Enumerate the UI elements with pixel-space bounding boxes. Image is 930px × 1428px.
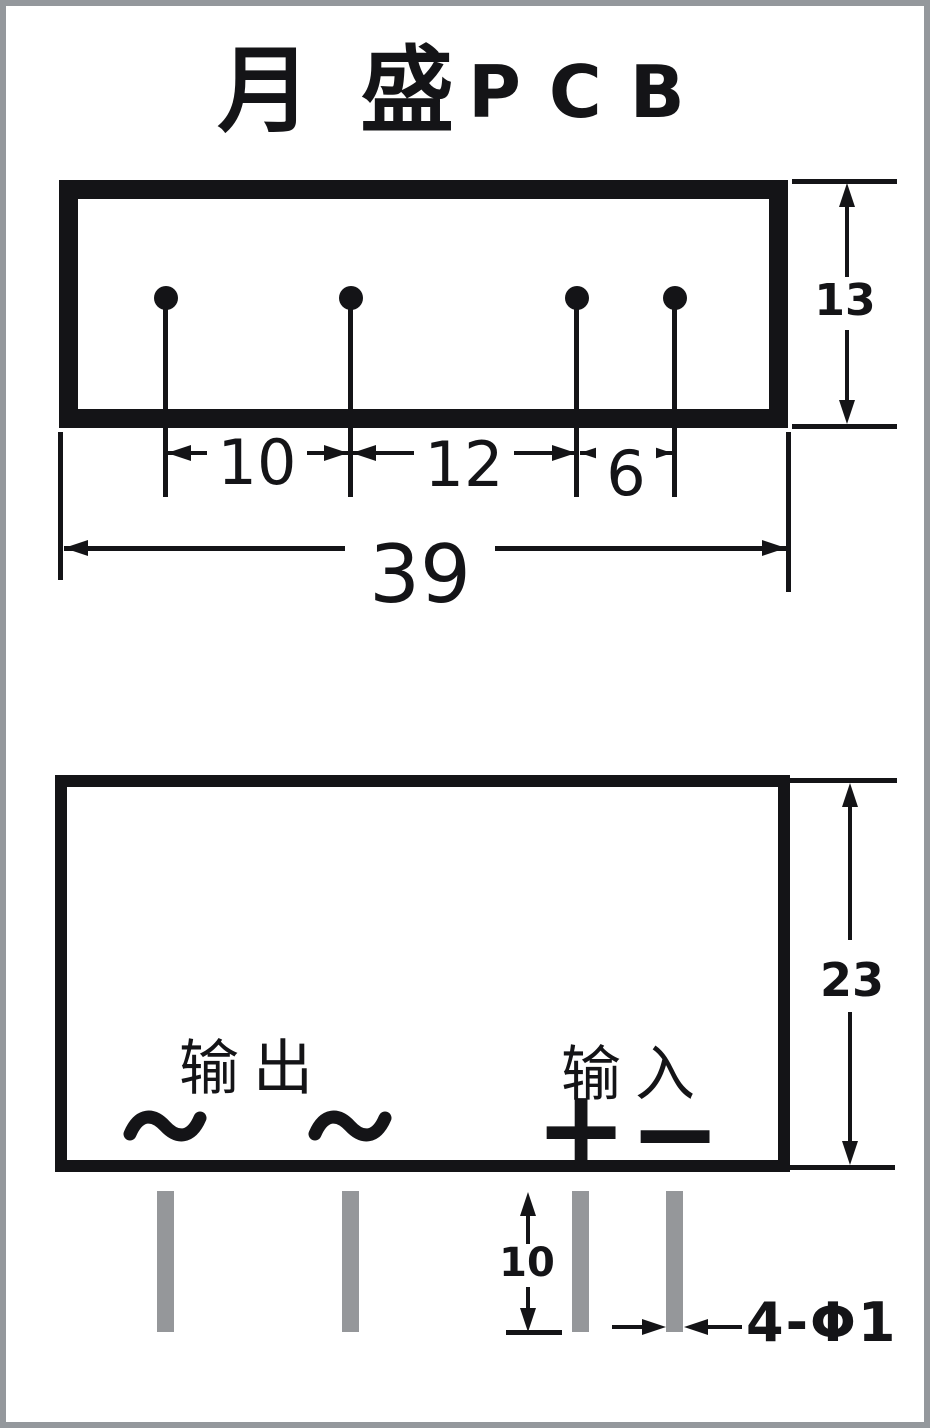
ac-wave-icon — [123, 1104, 207, 1150]
front-pin-2 — [342, 1191, 359, 1332]
front-pin-3 — [572, 1191, 589, 1332]
dim-23-label: 23 — [810, 957, 894, 1003]
front-pin-1 — [157, 1191, 174, 1332]
arrow-right-icon — [552, 445, 576, 461]
arrow-left-icon — [167, 445, 191, 461]
title-cjk: 月 盛 — [217, 45, 462, 139]
dim-line — [848, 805, 852, 940]
arrow-left-icon — [64, 540, 88, 556]
ext-line — [786, 432, 791, 592]
dim-line — [848, 1012, 852, 1144]
dim-line — [845, 205, 849, 277]
arrow-down-icon — [839, 400, 855, 424]
top-pin-pad-3 — [565, 286, 589, 310]
top-pin-pad-2 — [339, 286, 363, 310]
ac-wave-icon — [308, 1104, 392, 1150]
dim-39-label: 39 — [345, 535, 495, 615]
front-pin-4 — [666, 1191, 683, 1332]
arrow-right-icon — [762, 540, 786, 556]
top-pin-stem-1 — [163, 297, 168, 497]
title-row: 月 盛 PCB — [0, 36, 930, 148]
title-latin: PCB — [468, 56, 713, 128]
dim-pin-length-label: 10 — [487, 1243, 567, 1283]
ext-line — [790, 1165, 895, 1170]
datum-tick — [506, 1330, 562, 1335]
arrow-down-icon — [842, 1141, 858, 1165]
arrow-down-icon — [520, 1308, 536, 1332]
top-pin-pad-1 — [154, 286, 178, 310]
leader-line — [612, 1325, 646, 1329]
top-pin-stem-4 — [672, 297, 677, 497]
drawing-page: 月 盛 PCB 13 10 12 6 39 输出 输入 — [0, 0, 930, 1428]
arrow-left-icon — [684, 1319, 708, 1335]
ext-line — [792, 424, 897, 429]
dim-6-label: 6 — [596, 443, 656, 505]
leader-line — [706, 1325, 742, 1329]
ext-line — [58, 432, 63, 580]
arrow-right-icon — [324, 445, 348, 461]
arrow-up-icon — [839, 183, 855, 207]
arrow-up-icon — [842, 783, 858, 807]
arrow-right-icon — [642, 1319, 666, 1335]
plus-symbol: + — [535, 1074, 625, 1184]
top-pin-pad-4 — [663, 286, 687, 310]
dim-12-label: 12 — [414, 435, 514, 495]
pin-diameter-spec-label: 4-Φ1 — [746, 1296, 930, 1350]
arrow-up-icon — [520, 1192, 536, 1216]
output-label: 输出 — [143, 1036, 363, 1102]
dim-13-label: 13 — [803, 278, 887, 324]
minus-symbol: − — [629, 1078, 719, 1188]
dim-10-label: 10 — [207, 433, 307, 493]
dim-line — [845, 330, 849, 404]
top-pin-stem-3 — [574, 297, 579, 497]
top-pin-stem-2 — [348, 297, 353, 497]
arrow-left-icon — [352, 445, 376, 461]
